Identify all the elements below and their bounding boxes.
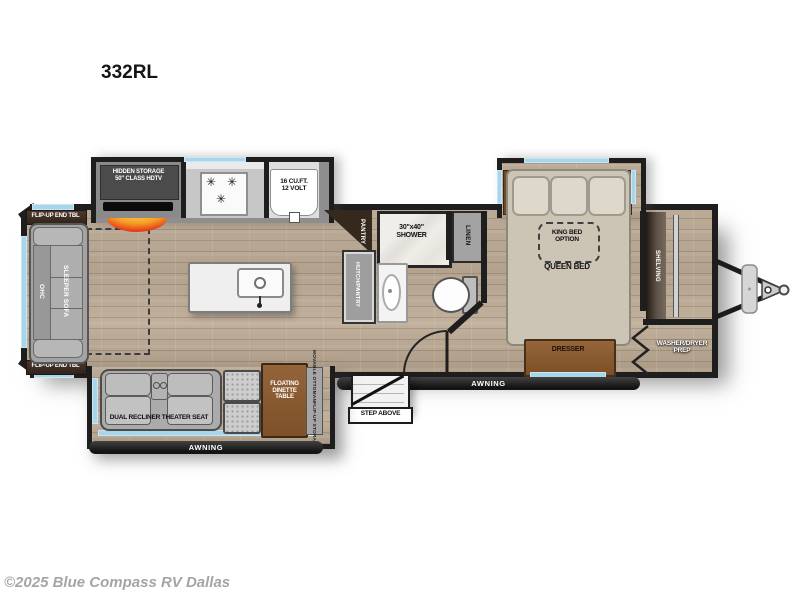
hitch-ball-socket xyxy=(780,286,789,295)
hitch-coupler-hole xyxy=(765,287,771,293)
bifold-doors xyxy=(633,326,648,374)
kitchen-island xyxy=(188,262,292,313)
lineart-overlay xyxy=(0,0,800,600)
entry-door-arc xyxy=(404,331,447,373)
propane-tank-valve xyxy=(748,288,751,291)
copyright-text: ©2025 Blue Compass RV Dallas xyxy=(4,574,230,591)
floorplan-page: 332RL FLIP-UP END TBL FLIP-UP END TBL OH… xyxy=(0,0,800,600)
island-faucet-ring xyxy=(254,277,266,289)
island-faucet-knob xyxy=(257,303,262,308)
